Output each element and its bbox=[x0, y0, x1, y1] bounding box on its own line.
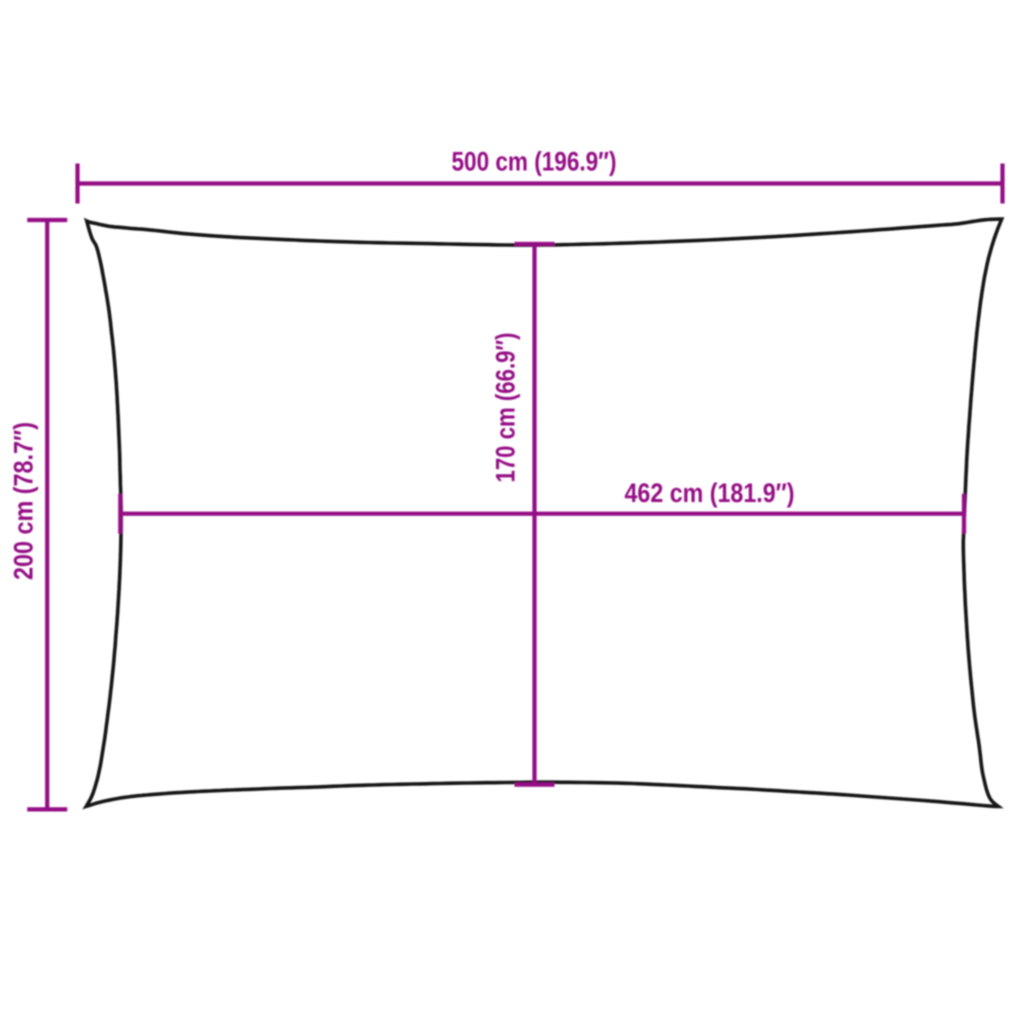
svg-text:500 cm (196.9″): 500 cm (196.9″) bbox=[452, 146, 617, 176]
svg-text:200 cm (78.7″): 200 cm (78.7″) bbox=[9, 422, 39, 580]
svg-text:170 cm (66.9″): 170 cm (66.9″) bbox=[491, 333, 521, 483]
svg-text:462 cm (181.9″): 462 cm (181.9″) bbox=[625, 478, 795, 508]
